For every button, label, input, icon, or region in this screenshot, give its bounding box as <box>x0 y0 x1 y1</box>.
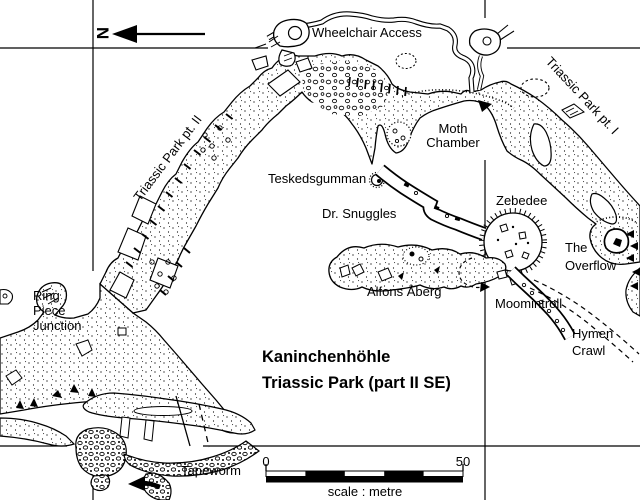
moth-chamber-feature <box>387 122 411 146</box>
wheelchair-entrance-lower <box>279 50 295 66</box>
label-ring-piece-junction-2: Piece <box>33 303 66 318</box>
label-moth-chamber-1: Moth <box>439 121 468 136</box>
cave-survey-map: N 0 50 scale : metre Wheelchair Access T… <box>0 0 640 500</box>
scale-bar: 0 50 scale : metre <box>262 454 470 499</box>
scale-start-label: 0 <box>262 454 269 469</box>
west-edge-stub <box>0 290 13 305</box>
label-tapeworm: Tapeworm <box>181 463 241 478</box>
label-ring-piece-junction-1: Ring <box>33 288 60 303</box>
label-teskedsgumman: Teskedsgumman <box>268 171 366 186</box>
tapeworm-west-blob <box>76 428 127 477</box>
label-moomintroll: Moomintroll <box>495 296 562 311</box>
label-dr-snuggles: Dr. Snuggles <box>322 206 397 221</box>
label-hymen-crawl-2: Crawl <box>572 343 605 358</box>
alfons-dotted-oval <box>403 247 429 265</box>
label-the-overflow-2: Overflow <box>565 258 617 273</box>
scale-caption: scale : metre <box>328 484 402 499</box>
tapeworm-connectors <box>120 417 154 441</box>
north-arrow: N <box>93 25 205 43</box>
label-ring-piece-junction-3: Junction <box>33 318 81 333</box>
southwest-tail <box>0 418 74 446</box>
map-title: Kaninchenhöhle Triassic Park (part II SE… <box>262 348 451 392</box>
north-label: N <box>93 27 112 39</box>
label-wheelchair-access: Wheelchair Access <box>312 25 422 40</box>
label-zebedee: Zebedee <box>496 193 547 208</box>
north-arrow-head <box>112 25 137 43</box>
scale-end-label: 50 <box>456 454 470 469</box>
survey-drawing: N 0 50 scale : metre Wheelchair Access T… <box>0 0 640 500</box>
wheelchair-east-chamber <box>470 25 514 90</box>
label-moth-chamber-2: Chamber <box>426 135 480 150</box>
map-title-line2: Triassic Park (part II SE) <box>262 374 451 392</box>
wheelchair-dashed-blob <box>396 54 416 69</box>
label-the-overflow-1: The <box>565 240 587 255</box>
label-alfons-aberg: Alfons Åberg <box>367 284 441 299</box>
label-hymen-crawl-1: Hymen <box>572 326 613 341</box>
pt1-hatched-sliver <box>562 104 584 118</box>
map-title-line1: Kaninchenhöhle <box>262 348 390 366</box>
overflow-south-spur <box>626 268 640 316</box>
dr-snuggles-passage <box>380 170 484 234</box>
